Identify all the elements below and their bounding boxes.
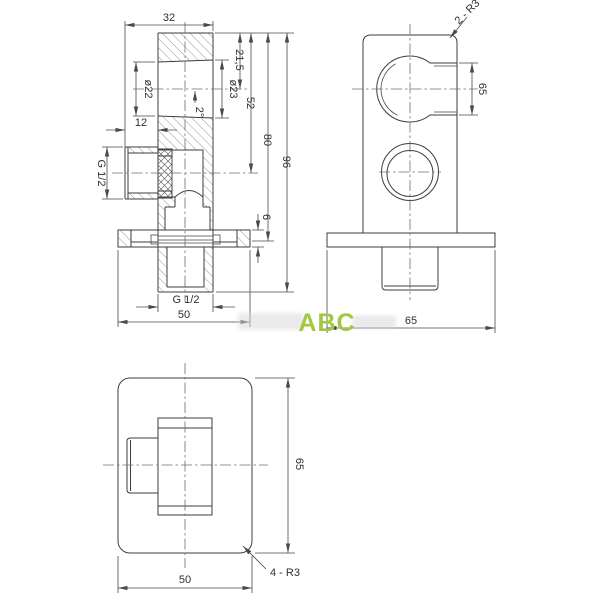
inlet-hole-outer [382, 144, 439, 201]
watermark-blur-text [352, 315, 396, 329]
dim-label-total-height: 96 [280, 156, 292, 168]
dim-label-plan-height: 65 [293, 458, 305, 470]
dim-label-flange-width: 50 [178, 309, 190, 321]
hatch-region [158, 207, 165, 230]
dim-label-bore-left: ø22 [142, 80, 154, 99]
dim-label-plan-corner-radius: 4 - R3 [270, 567, 300, 579]
watermark-brand: ABC [298, 309, 355, 337]
dim-label-offset: 12 [135, 117, 147, 129]
technical-drawing-page: 32 12 ø22 ø23 2° 21,5 52 80 96 [0, 0, 600, 600]
dim-label-taper: 2° [193, 107, 205, 118]
hatch-region [158, 117, 213, 150]
plan-view: 65 50 4 - R3 [103, 363, 305, 593]
dim-label-bottom-thread: G 1/2 [173, 294, 200, 306]
front-flange [327, 233, 495, 247]
front-dimensions: 2 - R3 65 65 [327, 0, 495, 333]
dim-label-front-flange-width: 65 [405, 315, 417, 327]
wall-flange [118, 230, 250, 247]
dim-label-width: 32 [163, 12, 175, 24]
holder-knob-chamfer [381, 64, 457, 115]
hatch-region [203, 150, 213, 197]
dim-label-plan-width: 50 [179, 574, 191, 586]
hatch-region [203, 197, 213, 207]
dim-label-bore-right: ø23 [227, 80, 239, 99]
watermark-blur-text [238, 313, 304, 330]
section-view: 32 12 ø22 ø23 2° 21,5 52 80 96 [95, 12, 294, 327]
bottom-pipe [158, 247, 213, 292]
plan-fitting [127, 438, 158, 493]
bore-dome-arc [175, 191, 203, 198]
watermark: ABC [238, 309, 396, 337]
dim-label-top-to-flange: 80 [261, 134, 273, 146]
dim-label-side-thread: G 1/2 [95, 160, 107, 187]
drawing-canvas: 32 12 ø22 ø23 2° 21,5 52 80 96 [0, 0, 600, 600]
dim-label-top-to-side-axis: 52 [244, 97, 256, 109]
dim-label-corner-radius: 2 - R3 [453, 0, 483, 27]
dim-label-knob-height: 65 [476, 83, 488, 95]
front-view: 2 - R3 65 65 [327, 0, 495, 333]
hatch-region [158, 33, 213, 61]
dim-label-top-to-axis: 21,5 [233, 49, 245, 70]
dim-label-flange-thickness: 6 [260, 214, 272, 220]
